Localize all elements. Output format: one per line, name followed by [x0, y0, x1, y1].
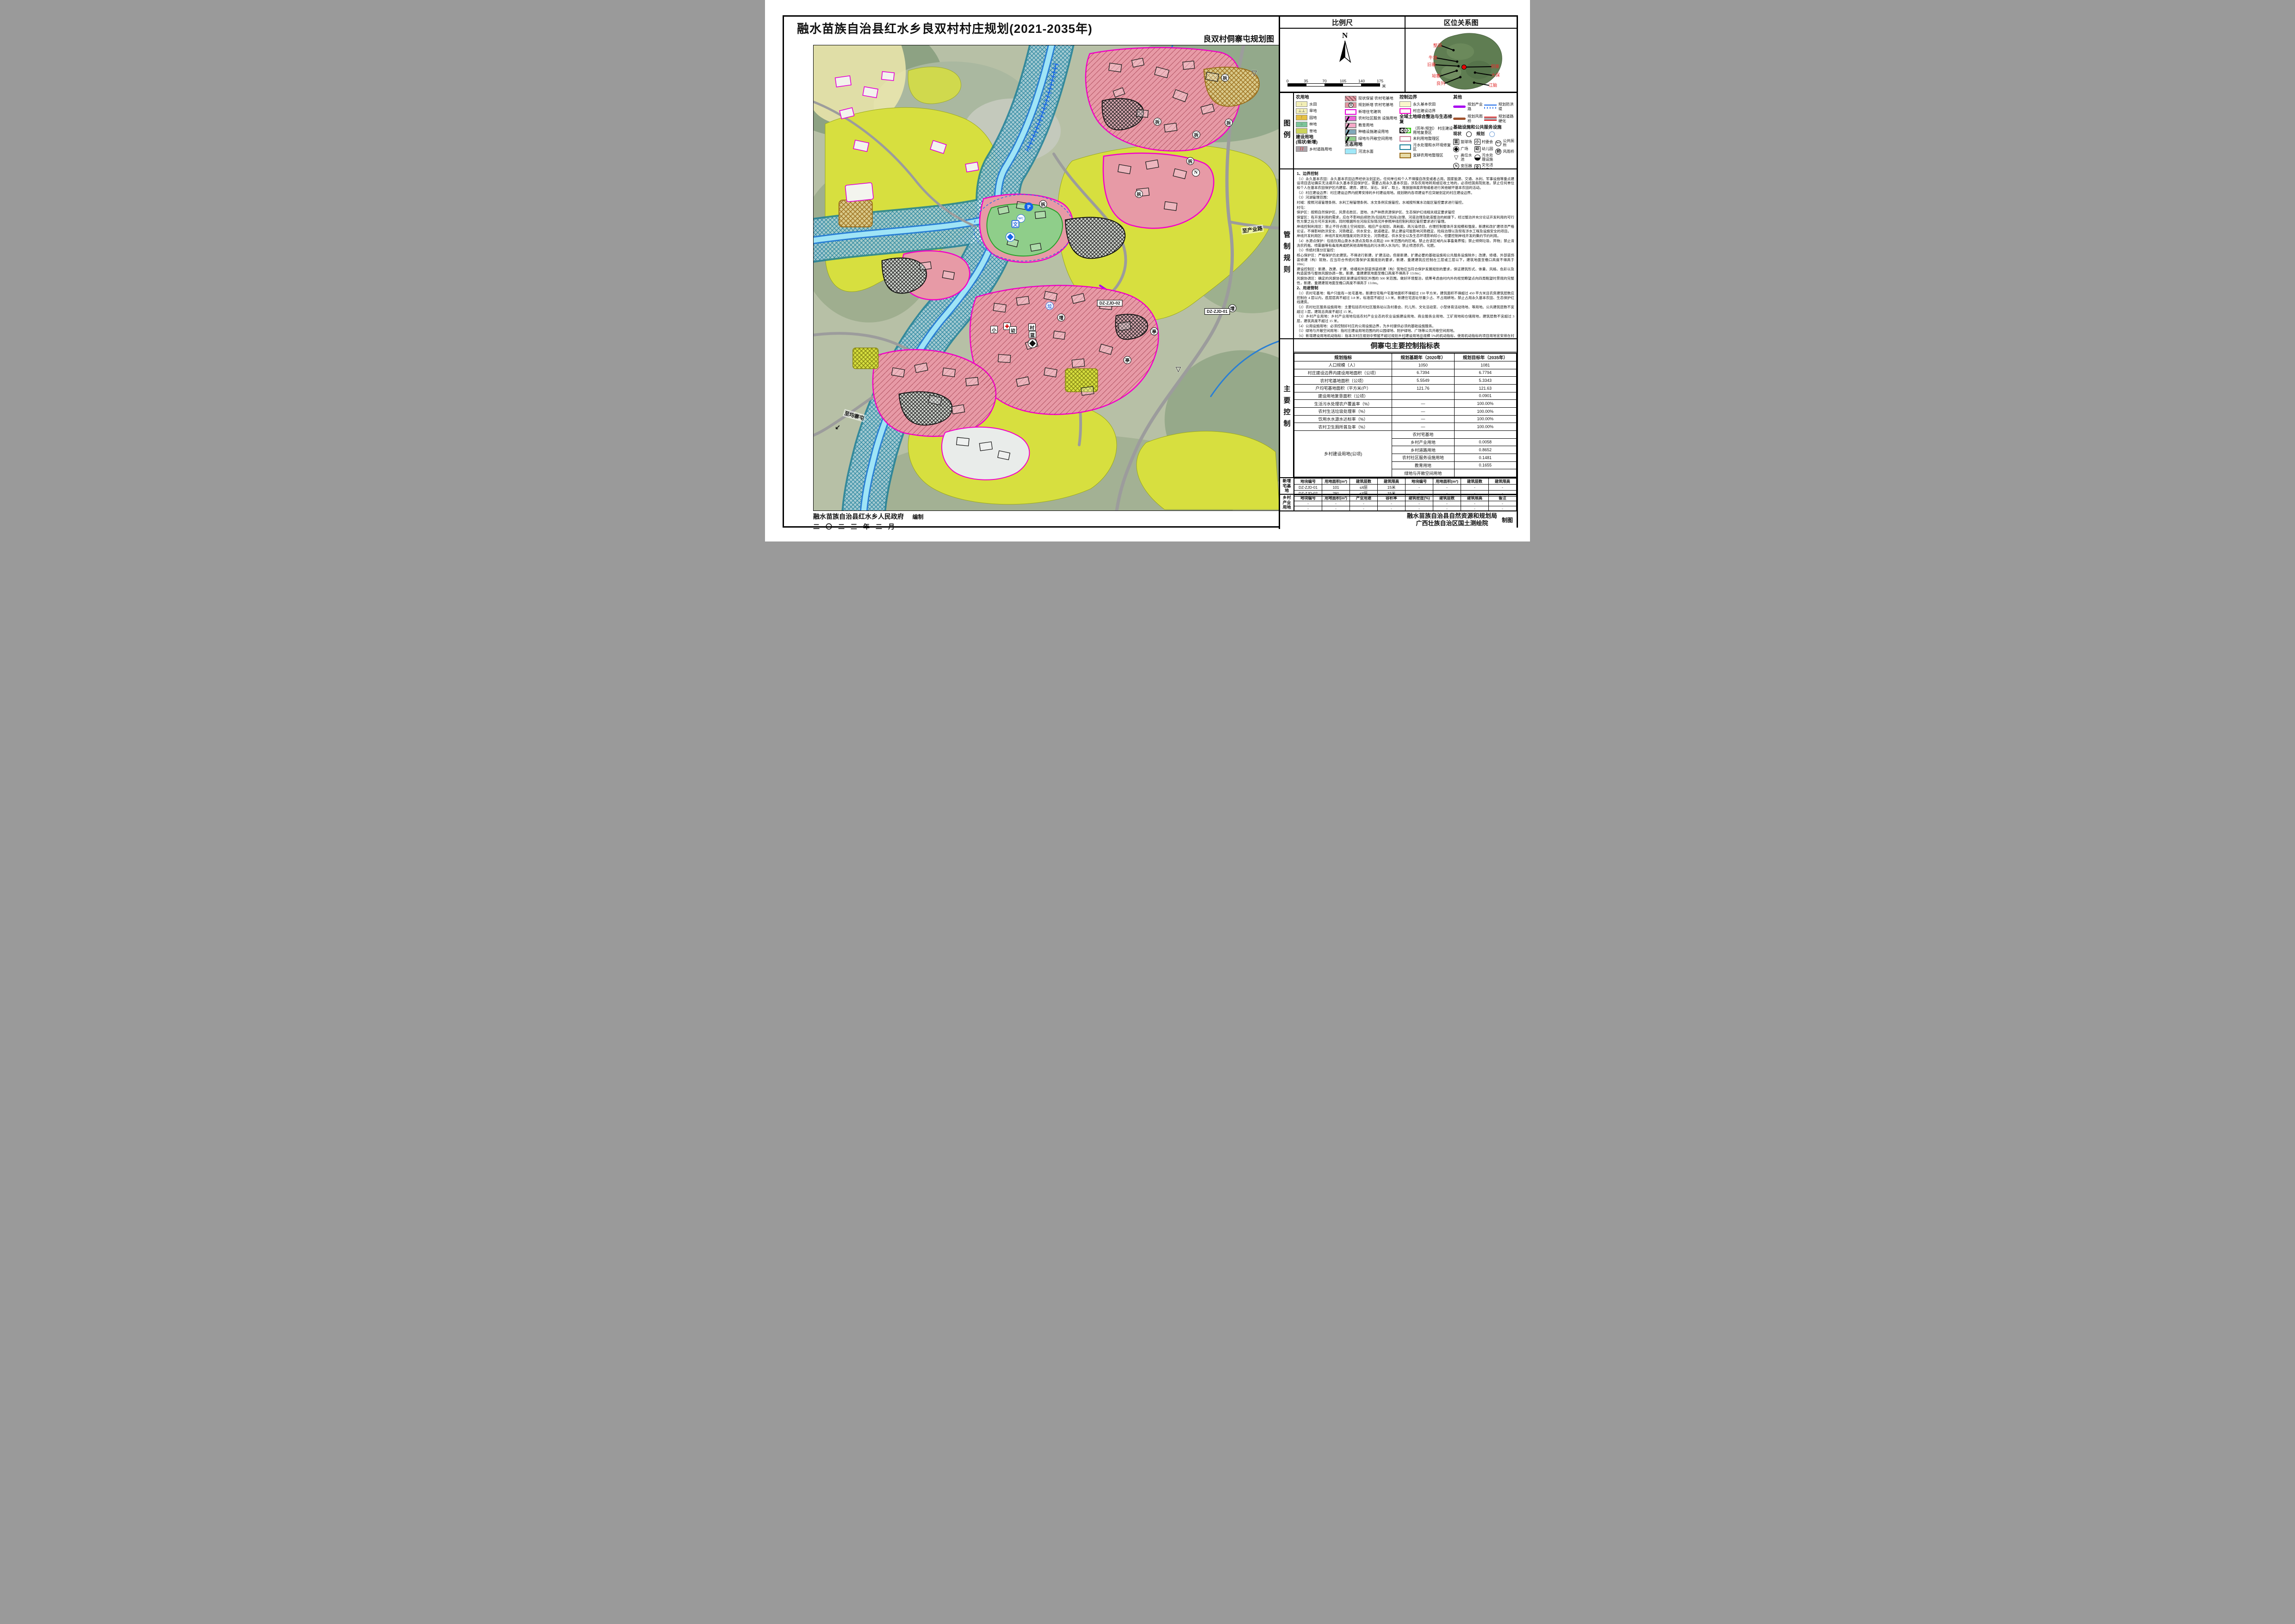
legend-item-label: 水田 [1309, 102, 1345, 106]
legend-swatch-icon [1399, 153, 1411, 158]
广场-icon [1453, 146, 1459, 152]
facility-status-row: 现状 规划 [1453, 131, 1516, 137]
legend-constr-title: 建设用地(现状/新增) [1296, 135, 1345, 145]
rule-paragraph: （3）河湖管理范围： [1297, 195, 1514, 200]
rule-paragraph: 核心保护区：严格保护历史建筑，不得进行新建、扩建活动，但是新建、扩建必要的基础设… [1297, 253, 1514, 267]
column-header: 建筑限高 [1378, 479, 1406, 485]
legend-swatch-icon [1345, 123, 1356, 128]
legend-item-label: 河流水面 [1358, 149, 1399, 154]
map-marker-拆: 拆 [1193, 131, 1200, 139]
location-dot-江脑 [1473, 81, 1475, 84]
文化活动中心-icon: 文 [1474, 164, 1480, 168]
table-row: -------- [1294, 501, 1517, 506]
legend-swatch-icon: ⊥⊥ [1296, 108, 1307, 114]
map-marker-拆: 拆 [1221, 74, 1229, 82]
map-marker-至均寨屯: 至均寨屯 [843, 409, 866, 423]
legend-item-label: 园地 [1309, 116, 1345, 120]
scale-ticks: 03570105140175 [1287, 79, 1387, 83]
map-marker-拆: 拆 [1225, 119, 1233, 127]
篮球场-icon: 篮 [1453, 139, 1459, 145]
compile-date: 二〇二三年二月 [813, 522, 1072, 531]
ln-purple-icon [1453, 106, 1466, 108]
scale-tick: 35 [1304, 79, 1308, 83]
column-header: 用地面积(m²) [1322, 479, 1350, 485]
facility-legend-item: ▽高位水池 [1453, 153, 1474, 162]
legend-item: 规划产业路 [1453, 102, 1483, 111]
legend-swatch-icon: ○ [1296, 122, 1307, 127]
map-marker-dblue [1006, 232, 1015, 242]
rule-paragraph: 风貌协调区：确定的风貌协调区是建设控制区外围的 500 米范围。做好环境整治，统… [1297, 276, 1514, 285]
column-header: 建筑限高 [1489, 479, 1517, 485]
legend-item-label: 永久基本农田 [1413, 102, 1453, 106]
column-header: 备注 [1489, 495, 1517, 501]
location-label-旧寨: 旧寨 [1427, 62, 1436, 67]
rule-paragraph: （6）新增建设用地机动指标：指本次村庄规划中预留不超过规划乡村建设用地总规模 5… [1297, 334, 1514, 338]
rule-paragraph: 村屯： [1297, 205, 1514, 210]
legend-item: 宜耕农用地整理区 [1399, 153, 1453, 158]
legend-item: 永久基本农田 [1399, 101, 1453, 107]
map-marker-P[interactable]: P [1025, 203, 1033, 212]
scale-location-row: N 03570105140175 米 整调牛塘旧寨坳寨良列侗寨大保江脑 [1280, 29, 1517, 93]
legend-item: 污水处理和水环境修复区 [1399, 143, 1453, 152]
legend-swatch-icon [1345, 109, 1356, 115]
location-label-良列: 良列 [1437, 81, 1445, 86]
legend-swatch-icon: ! [1296, 115, 1307, 120]
legend-item-label: 未利用地整理区 [1413, 137, 1453, 141]
indicator-row: 农村宅基地面积（公顷）5.55495.3343 [1294, 377, 1517, 385]
indicator-row: 农村卫生厕所普及率（%）—100.00% [1294, 423, 1517, 431]
legend-swatch-icon: ↓ [1296, 101, 1307, 107]
panel-headers: 比例尺 区位关系图 [1280, 17, 1517, 29]
legend-control-title: 控制边界 [1399, 95, 1453, 100]
column-header: 地块编号 [1406, 479, 1433, 485]
compiler-role: 编制 [912, 514, 923, 520]
legend-item-label: 污水处理和水环境修复区 [1413, 143, 1453, 152]
legend-swatch-icon [1345, 129, 1356, 135]
compiler-footer: 融水苗族自治县红水乡人民政府 编制 二〇二三年二月 [813, 512, 1072, 531]
legend-item: 种植设施建设用地 [1345, 129, 1399, 135]
indicator-row: 农村生活垃圾处理率（%）—100.00% [1294, 407, 1517, 415]
facility-legend-item: WC公共厕所 [1495, 139, 1516, 148]
facility-legend-item: N变压器 [1453, 163, 1474, 168]
map-marker-N: N [1192, 169, 1200, 177]
plan-circle-icon [1489, 131, 1495, 137]
map-marker-村: 村 [1028, 324, 1036, 331]
legend-item: ↓水田 [1296, 101, 1345, 107]
legend-remediation-title: 全域土地综合整治与生态修复 [1399, 115, 1453, 125]
location-title: 区位关系图 [1406, 17, 1517, 28]
legend-item: [ ]乡村道路用地 [1296, 146, 1345, 152]
rule-paragraph: 村域：按照河道管理条例、水利工程管理条例、水文条例实施管控。水域按所属水功能区管… [1297, 200, 1514, 205]
table-row: -------- [1294, 506, 1517, 511]
indicators-title: 侗寨屯主要控制指标表 [1294, 339, 1517, 353]
column-header: 用地面积(m²) [1433, 479, 1461, 485]
ln-brown-icon [1453, 118, 1466, 120]
drafter-org2: 广西壮族自治区国土测绘院 [1407, 520, 1497, 527]
legend-section: 图例 农用地 ↓水田⊥⊥旱地!园地○林地草地 建设用地(现状/新增) [ ]乡村… [1280, 93, 1517, 169]
legend-swatch-icon [1345, 116, 1356, 121]
legend-item: 规划风雨桥 [1453, 114, 1483, 123]
map-marker-至产业路: 至产业路 [1241, 224, 1264, 235]
legend-item: 河流水面 [1345, 149, 1399, 154]
legend-item: 教育用地 [1345, 123, 1399, 128]
facility-legend-item: 篮篮球场 [1453, 139, 1474, 145]
scale-tick: 105 [1340, 79, 1346, 83]
indicator-row: 饮用水水源水达标率（%）—100.00% [1294, 415, 1517, 423]
facility-legend-item: 文文化活动中心 [1474, 163, 1495, 168]
legend-item: ⊥⊥旱地 [1296, 108, 1345, 114]
legend-other-title: 其他 [1453, 95, 1516, 100]
facility-legend-item: 污水处理设施 [1474, 153, 1495, 162]
compiler-org: 融水苗族自治县红水乡人民政府 [813, 512, 904, 521]
legend-item-label: 乡村道路用地 [1309, 147, 1345, 151]
location-dot-侗寨 [1462, 65, 1466, 69]
rule-paragraph: （3）乡村产业用地：乡村产业用地包括农村产业业态的农业设施建设用地、商业服务业用… [1297, 314, 1514, 323]
rule-paragraph: （1）农村宅基地：每户只能有一处宅基地，新建住宅每户宅基地面积不得超过 150 … [1297, 291, 1514, 305]
legend-item: 现状保留 农村宅基地 [1345, 96, 1399, 101]
rule-paragraph: 2、用途管制 [1297, 286, 1514, 291]
变压器-icon: N [1453, 163, 1459, 168]
rules-side-label: 管制规则 [1280, 169, 1294, 338]
map-marker-DZ-ZJD-02[interactable]: DZ-ZJD-02 [1097, 300, 1122, 306]
indicators-table: 规划指标 规划基期年（2020年） 规划目标年（2035年） 人口规模（人）10… [1294, 353, 1517, 477]
legend-swatch-icon [1296, 128, 1307, 134]
map-marker-增: 增 [1057, 314, 1065, 322]
scale-title: 比例尺 [1280, 17, 1406, 28]
legend-item-label: 农村社区服务 设施用地 [1358, 116, 1399, 120]
indicator-row: 建设用地复垦面积（公顷）0.0901 [1294, 392, 1517, 400]
drafter-footer: 融水苗族自治县自然资源和规划局 广西壮族自治区国土测绘院 制图 [1279, 511, 1517, 528]
column-header: 产业用途 [1350, 495, 1378, 501]
facility-legend-item: 桥风雨桥 [1495, 149, 1516, 155]
map-marker-篮: 篮 [1029, 331, 1036, 338]
legend-agri-title: 农用地 [1296, 95, 1345, 100]
legend-item-label: 新增住宅建筑 [1358, 110, 1399, 114]
map-marker-幼: 幼 [1009, 326, 1017, 334]
location-dot-良列 [1459, 76, 1462, 78]
legend-item: ○林地 [1296, 122, 1345, 127]
legend-swatch-icon [1399, 108, 1411, 114]
indicator-row: 人口规模（人）10501081 [1294, 361, 1517, 369]
facility-legend-item: 小村委会 [1474, 139, 1495, 145]
legend-swatch-icon: [ ] [1296, 146, 1307, 152]
legend-item: 拆（历年/规划） 村庄建设用地复垦区 [1399, 126, 1453, 135]
north-arrow-icon: N [1336, 31, 1354, 65]
legend-item: 增规划新增 农村宅基地 [1345, 102, 1399, 108]
column-header: 地块编号 [1294, 495, 1322, 501]
scale-tick: 175 [1377, 79, 1383, 83]
indicator-group-row: 乡村建设用地(公顷)农村宅基地5.3343 [1294, 430, 1517, 438]
map-marker-拆: 拆 [1039, 200, 1047, 208]
map-marker-拆: 拆 [1135, 190, 1143, 198]
legend-item-label: （历年/规划） 村庄建设用地复垦区 [1413, 126, 1453, 135]
location-map-svg: 整调牛塘旧寨坳寨良列侗寨大保江脑 [1406, 29, 1517, 92]
legend-swatch-icon [1345, 136, 1356, 142]
column-header: 建筑层数 [1433, 495, 1461, 501]
legend-swatch-icon: 增 [1345, 102, 1356, 108]
rule-paragraph: 保护区：按照自然保护区、风景名胜区、湿地、水产种质资源保护区、生态保护红线相关规… [1297, 210, 1514, 215]
drafter-role: 制图 [1502, 516, 1513, 524]
高位水池-icon: ▽ [1453, 155, 1459, 161]
indicators-section: 主要控制 侗寨屯主要控制指标表 规划指标 规划基期年（2020年） 规划目标年（… [1280, 339, 1517, 478]
scale-bar: 03570105140175 米 [1287, 79, 1387, 88]
scale-bar-segments [1287, 83, 1380, 87]
legend-eco-title: 生态用地 [1345, 143, 1399, 148]
map-marker-▽: ▽ [1175, 365, 1181, 374]
rules-section: 管制规则 1、边界控制（1）永久基本农田：永久基本农田边界经依法划定后，任何单位… [1280, 169, 1517, 339]
legend-item-label: 规划新增 农村宅基地 [1358, 103, 1399, 107]
rule-paragraph: （5）传统村落分区管控： [1297, 248, 1514, 253]
rule-paragraph: （2）村庄建设边界：村庄建设边界内统筹安排的乡村建设用地。规划期内各项建设不应突… [1297, 191, 1514, 195]
facility-legend-item: 广场 [1453, 146, 1474, 152]
legend-item-label: 教育用地 [1358, 123, 1399, 127]
legend-swatch-icon [1399, 136, 1411, 142]
rule-paragraph: （1）永久基本农田：永久基本农田边界经依法划定后，任何单位和个人不得擅自改变或者… [1297, 177, 1514, 190]
legend-item-label: 宜耕农用地整理区 [1413, 153, 1453, 157]
legend-item: 村庄建设边界 [1399, 108, 1453, 114]
map-marker-拆: 拆 [1154, 118, 1162, 126]
legend-item: 新增住宅建筑 [1345, 109, 1399, 115]
legend-item: 草地 [1296, 128, 1345, 134]
planning-map[interactable]: 拆拆拆拆拆拆拆增增垃N亭亭PWC文小✚幼村篮▽▽DZ-ZJD-02DZ-ZJD-… [813, 45, 1280, 511]
location-dot-整调 [1452, 49, 1455, 51]
map-marker-亭: 亭 [1124, 356, 1132, 364]
column-header: 建筑层数 [1350, 479, 1378, 485]
table-row: DZ-ZJD-01101≤4层15米---- [1294, 485, 1517, 491]
location-label-侗寨: 侗寨 [1491, 64, 1499, 69]
location-label-大保: 大保 [1491, 73, 1500, 78]
legend-swatch-icon: 拆 [1399, 128, 1411, 133]
map-marker-小: 小 [990, 326, 998, 333]
column-header: 建筑层数 [1461, 479, 1489, 485]
ln-dike-icon [1484, 105, 1497, 109]
map-markers-layer: 拆拆拆拆拆拆拆增增垃N亭亭PWC文小✚幼村篮▽▽DZ-ZJD-02DZ-ZJD-… [814, 45, 1280, 510]
map-marker-亭: 亭 [1151, 328, 1158, 336]
indicator-row: 村庄建设边界内建设用地面积（公顷）6.73946.7794 [1294, 369, 1517, 377]
drafter-org1: 融水苗族自治县自然资源和规划局 [1407, 512, 1497, 520]
rule-paragraph: 岸线开发利用区：岸线开发利用强度对防洪安全、河势稳定、供水安全以及生态环境影响较… [1297, 234, 1514, 238]
scale-unit: 米 [1382, 83, 1386, 89]
location-label-牛塘: 牛塘 [1429, 55, 1437, 60]
legend-item-label: 林地 [1309, 122, 1345, 126]
map-marker-▽: ▽ [1251, 69, 1257, 78]
map-subtitle: 良双村侗寨屯规划图 [1203, 32, 1274, 44]
industry-table: 乡村 产业 用地 地块编号用地面积(m²)产业用途容积率建筑密度(%)建筑层数建… [1280, 495, 1517, 511]
rule-paragraph: 建设控制区：新建、改建、扩建、修缮和外部装饰装修建（构）筑物应当符合保护发展规划… [1297, 267, 1514, 276]
page-title: 融水苗族自治县红水乡良双村村庄规划(2021-2035年) [797, 19, 1093, 37]
legend-item: 农村社区服务 设施用地 [1345, 116, 1399, 121]
column-header: 地块编号 [1294, 479, 1322, 485]
legend-facilities-title: 基础设施和公共服务设施 [1453, 125, 1516, 131]
ln-hard-icon [1484, 117, 1497, 121]
location-label-江脑: 江脑 [1488, 82, 1497, 87]
污水处理设施-icon [1474, 155, 1480, 161]
legend-item: 规划道路硬化 [1484, 114, 1514, 123]
map-marker-dblack [1028, 339, 1037, 348]
rule-paragraph: （5）绿地与开敞空间用地：指村庄建设用地范围内的公园绿地、防护绿地、广场等公共开… [1297, 329, 1514, 333]
rule-paragraph: （4）水源点保护：包括饮用山泉水水源点及取水点周边 100 米范围内的区域。禁止… [1297, 239, 1514, 248]
legend-item: !园地 [1296, 115, 1345, 120]
scale-box: N 03570105140175 米 [1280, 29, 1406, 92]
legend-swatch-icon [1345, 96, 1356, 101]
legend-swatch-icon [1399, 144, 1411, 150]
status-circle-icon [1466, 131, 1472, 137]
location-label-坳寨: 坳寨 [1432, 74, 1441, 79]
scale-tick: 70 [1322, 79, 1326, 83]
legend-item-label: 草地 [1309, 129, 1345, 133]
legend-swatch-icon [1345, 149, 1356, 154]
svg-text:N: N [1342, 31, 1348, 40]
plan-sheet-page: 融水苗族自治县红水乡良双村村庄规划(2021-2035年) 良双村侗寨屯规划图 [765, 0, 1530, 541]
indicator-row: 户均宅基地面积（平方米/户）121.76121.63 [1294, 384, 1517, 392]
location-dot-大保 [1474, 71, 1476, 74]
scale-tick: 140 [1358, 79, 1365, 83]
column-header: 建筑限高 [1461, 495, 1489, 501]
legend-item-label: 村庄建设边界 [1413, 109, 1453, 113]
plots-side-label: 新增 宅基 地 [1280, 478, 1294, 494]
column-header: 建筑密度(%) [1406, 495, 1433, 501]
legend-swatch-icon [1399, 101, 1411, 107]
column-header: 容积率 [1378, 495, 1406, 501]
map-marker-垃: 垃 [1046, 302, 1054, 310]
column-header: 用地面积(m²) [1322, 495, 1350, 501]
legend-item-label: 旱地 [1309, 109, 1345, 113]
幼儿园-icon: 幼 [1474, 146, 1480, 152]
facility-legend-item: 幼幼儿园 [1474, 146, 1495, 152]
map-marker-DZ-ZJD-01[interactable]: DZ-ZJD-01 [1204, 308, 1230, 315]
公共厕所-icon: WC [1495, 140, 1501, 146]
location-dot-旧寨 [1457, 65, 1460, 67]
legend-side-label: 图例 [1280, 93, 1294, 168]
location-dot-坳寨 [1455, 69, 1458, 72]
indicator-row: 生活污水处理农户覆盖率（%）—100.00% [1294, 400, 1517, 408]
风雨桥-icon: 桥 [1495, 149, 1501, 155]
legend-item-label: 绿地与开敞空间用地 [1358, 137, 1399, 141]
industry-side-label: 乡村 产业 用地 [1280, 495, 1294, 510]
sheet-frame: 融水苗族自治县红水乡良双村村庄规划(2021-2035年) 良双村侗寨屯规划图 [783, 15, 1518, 528]
rule-paragraph: 1、边界控制 [1297, 171, 1514, 176]
legend-item: 未利用地整理区 [1399, 136, 1453, 142]
rule-paragraph: 保留区：有开发利用的需求，应在不影响后续防洪(包括险工险段)治理、河道治理及航道… [1297, 215, 1514, 224]
rules-text: 1、边界控制（1）永久基本农田：永久基本农田边界经依法划定后，任何单位和个人不得… [1294, 169, 1517, 338]
legend-item-label: 种植设施建设用地 [1358, 130, 1399, 134]
rule-paragraph: （4）公用设施用地：必须控制好村庄的公用设施边界，为乡村提供必须的基础设施服务。 [1297, 324, 1514, 329]
info-panel: 比例尺 区位关系图 N 03570105140175 米 [1279, 17, 1517, 529]
map-marker-文: 文 [1012, 220, 1020, 228]
rule-paragraph: （2）农村社区服务设施用地：主要包括农村社区服务站以及村委会、托儿所、文化活动室… [1297, 305, 1514, 314]
legend-item: 绿地与开敞空间用地 [1345, 136, 1399, 142]
map-marker-↙: ↙ [835, 424, 840, 432]
legend-item-label: 现状保留 农村宅基地 [1358, 96, 1399, 100]
location-map[interactable]: 整调牛塘旧寨坳寨良列侗寨大保江脑 [1406, 29, 1517, 92]
rule-paragraph: 岸线控制利用区：禁止不符合国土空间规划，相应产业规划，高耗能、高污染项目，合理控… [1297, 224, 1514, 233]
legend-item: 规划防洪堤 [1484, 102, 1514, 111]
村委会-icon: 小 [1474, 139, 1480, 145]
indicators-side-label: 主要控制 [1280, 339, 1294, 477]
location-dot-牛塘 [1456, 61, 1458, 63]
new-homestead-table: 新增 宅基 地 地块编号用地面积(m²)建筑层数建筑限高地块编号用地面积(m²)… [1280, 478, 1517, 495]
scale-tick: 0 [1287, 79, 1289, 83]
map-marker-拆: 拆 [1187, 157, 1194, 165]
location-label-整调: 整调 [1433, 43, 1442, 48]
